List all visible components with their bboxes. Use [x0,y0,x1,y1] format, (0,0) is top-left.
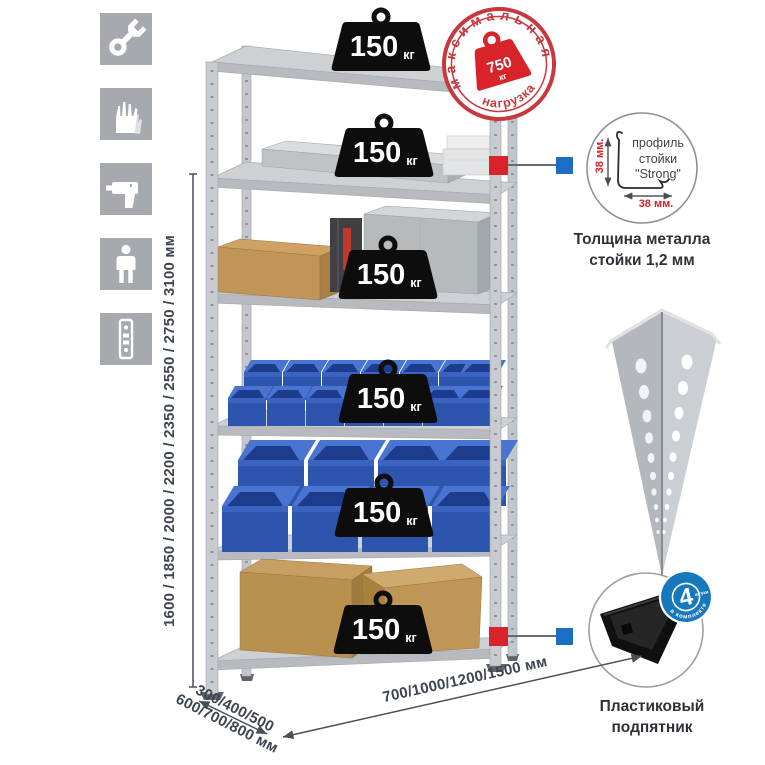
metal-thickness-caption: Толщина металла стойки 1,2 мм [560,230,724,272]
foot-callout-connector [489,627,573,646]
product-infographic: 150 кг 150 кг 150 кг 150 кг 150 кг 150 к… [0,0,765,765]
svg-text:кг: кг [403,48,414,62]
svg-text:150: 150 [353,497,401,529]
profile-callout-text: профиль стойки "Strong" [612,136,704,183]
thickness-caption-line2: стойки 1,2 мм [560,251,724,272]
rack-illustration: 150 кг 150 кг 150 кг 150 кг 150 кг 150 к… [0,0,765,765]
corner-post-image [606,310,720,576]
callout-marker-red [489,156,508,175]
shelf-load-badge: 150 кг [332,10,431,71]
svg-text:кг: кг [410,400,421,414]
callout-marker-blue [556,628,573,645]
profile-text-line1: профиль [612,136,704,152]
svg-text:кг: кг [406,154,417,168]
plastic-foot-caption: Пластиковый подпятник [564,697,740,739]
foot-caption-line2: подпятник [564,718,740,739]
profile-dim-vertical: 38 мм. [594,125,606,187]
svg-text:150: 150 [357,383,405,415]
svg-text:150: 150 [357,259,405,291]
profile-text-line2: стойки [612,152,704,168]
height-dimension-label: 1600 / 1850 / 2000 / 2200 / 2350 / 2550 … [161,166,183,696]
cardboard-box-small [218,239,340,300]
foot-caption-line1: Пластиковый [564,697,740,718]
callout-marker-blue [556,157,573,174]
svg-text:150: 150 [353,137,401,169]
white-boxes [443,136,493,175]
shelf-load-badge: 150 кг [335,116,434,177]
svg-text:кг: кг [410,276,421,290]
profile-text-line3: "Strong" [612,167,704,183]
svg-text:150: 150 [352,614,400,646]
max-load-stamp: 750 кг максимальная нагрузка [427,0,570,133]
profile-dim-horizontal: 38 мм. [625,198,687,210]
height-dimension-line [189,174,197,687]
svg-text:150: 150 [350,31,398,63]
thickness-caption-line1: Толщина металла [560,230,724,251]
svg-text:кг: кг [406,514,417,528]
svg-text:кг: кг [405,631,416,645]
profile-callout-connector [489,156,573,175]
callout-marker-red [489,627,508,646]
